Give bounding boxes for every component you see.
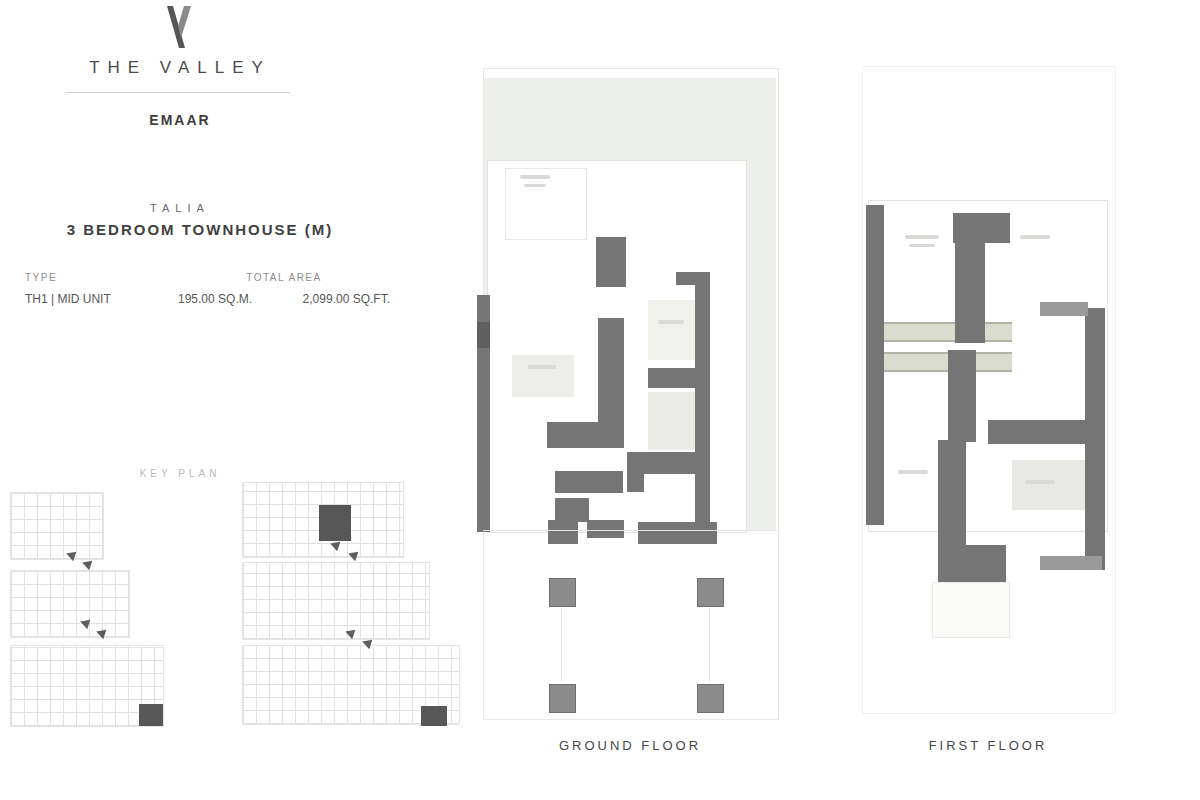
- column-post: [697, 684, 724, 713]
- driveway-line: [561, 608, 562, 682]
- type-value: TH1 | MID UNIT: [25, 292, 155, 306]
- room-fill: [648, 300, 695, 360]
- wall-segment: [695, 278, 710, 532]
- room-text: [658, 320, 684, 324]
- room-fill: [512, 355, 574, 397]
- room-fill: [1012, 460, 1087, 510]
- total-area-label: TOTAL AREA: [178, 272, 390, 283]
- wall-segment: [547, 422, 624, 448]
- room-text: [524, 184, 546, 187]
- wall-segment: [676, 272, 710, 285]
- wall-segment: [648, 368, 695, 388]
- key-plan-grid: [10, 492, 104, 560]
- balcony-louvre-band: [872, 322, 1012, 342]
- wall-segment: [938, 440, 966, 582]
- column-post: [697, 578, 724, 607]
- total-area-block: TOTAL AREA 195.00 SQ.M. 2,099.00 SQ.FT.: [178, 272, 390, 306]
- room-fill: [648, 392, 695, 450]
- wall-segment: [955, 243, 985, 343]
- type-label: TYPE: [25, 272, 155, 283]
- key-plan-label: KEY PLAN: [120, 468, 240, 479]
- room-text: [898, 470, 928, 474]
- type-block: TYPE TH1 | MID UNIT: [25, 272, 155, 306]
- wall-segment: [640, 452, 695, 474]
- column-post: [549, 578, 576, 607]
- balcony-louvre-band: [872, 352, 1012, 372]
- wall-segment: [1040, 302, 1088, 316]
- ground-floor-label: GROUND FLOOR: [483, 738, 777, 753]
- wall-segment: [477, 322, 490, 348]
- wall-segment: [596, 237, 626, 287]
- wall-segment: [555, 498, 589, 522]
- area-sqm: 195.00 SQ.M.: [178, 292, 252, 306]
- wall-segment: [638, 522, 717, 544]
- collection-name: TALIA: [60, 202, 300, 214]
- highlighted-unit-cell: [319, 505, 351, 541]
- room-text: [905, 235, 939, 239]
- area-sqft: 2,099.00 SQ.FT.: [303, 292, 390, 306]
- brand-name: THE VALLEY: [60, 58, 300, 78]
- key-plan-grid: [242, 645, 460, 725]
- brand-divider: [66, 92, 290, 93]
- brand-logo-icon: [160, 4, 200, 50]
- highlighted-unit-cell: [421, 706, 447, 726]
- room-text: [528, 365, 556, 369]
- key-plan-grid: [242, 482, 404, 558]
- driveway-edge-line: [483, 530, 777, 531]
- road-arrow-icon: [81, 558, 93, 570]
- wall-segment: [1085, 308, 1105, 570]
- road-arrow-icon: [347, 549, 359, 561]
- room-text: [520, 175, 550, 179]
- wall-segment: [988, 420, 1088, 444]
- unit-title: 3 BEDROOM TOWNHOUSE (M): [20, 221, 380, 238]
- key-plan-grid: [10, 570, 130, 638]
- room-text: [909, 244, 935, 247]
- wall-segment: [627, 452, 644, 492]
- driveway-line: [709, 608, 710, 682]
- brochure-page: THE VALLEY EMAAR TALIA 3 BEDROOM TOWNHOU…: [0, 0, 1200, 800]
- column-post: [549, 684, 576, 713]
- stair-void-outline: [932, 582, 1010, 638]
- key-plan-grid: [242, 562, 430, 640]
- wall-segment: [548, 520, 578, 544]
- wall-segment: [587, 520, 624, 538]
- highlighted-unit-cell: [139, 704, 163, 726]
- room-text: [1025, 480, 1055, 484]
- wall-segment: [966, 545, 1006, 582]
- wall-segment: [948, 350, 976, 442]
- wall-segment: [1040, 556, 1102, 570]
- first-floor-label: FIRST FLOOR: [862, 738, 1114, 753]
- developer-name: EMAAR: [60, 112, 300, 128]
- wall-segment: [953, 213, 1010, 243]
- wall-segment: [866, 205, 884, 525]
- key-plan-grid: [10, 645, 164, 727]
- wall-segment: [555, 471, 623, 493]
- room-text: [1020, 235, 1050, 239]
